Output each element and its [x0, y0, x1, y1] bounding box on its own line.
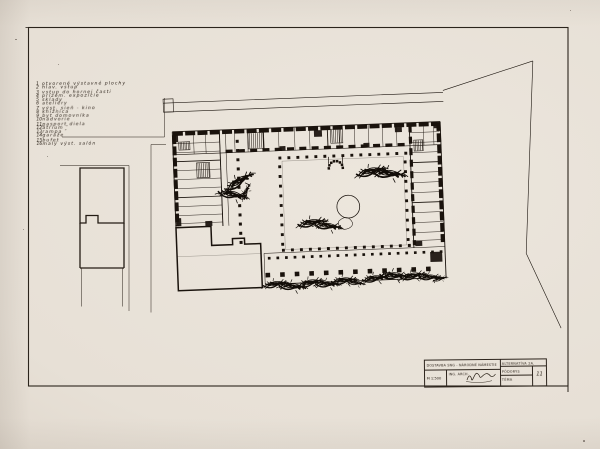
title-block: DOSTAVBA SNG - NÁRODNÉ NÁMESTIE M 1:500 … — [424, 358, 547, 387]
main-building-plan — [162, 60, 561, 343]
room-partitions — [172, 122, 444, 257]
fountain-circle — [336, 195, 360, 219]
building-outline — [172, 122, 446, 288]
wall-segments — [172, 122, 444, 254]
drawing-type-label: PÔDORYS — [500, 367, 533, 376]
theme-label: TÉMA — [501, 375, 534, 385]
author-label: ING. ARCH. — [447, 370, 501, 386]
legend-item-label: malý výst. salón — [42, 143, 96, 147]
dust-speck — [58, 64, 59, 65]
tree-symbol — [417, 271, 444, 283]
dust-speck — [23, 229, 24, 230]
site-boundary-right — [519, 60, 561, 329]
trees — [213, 158, 449, 298]
existing-building-outline — [80, 168, 124, 268]
dust-speck — [47, 156, 48, 157]
south-colonnade — [264, 246, 446, 284]
dust-speck — [15, 39, 17, 41]
southwest-annex-outline — [176, 225, 262, 291]
tree-symbol — [369, 164, 408, 184]
drawing-scale: M 1:500 — [425, 371, 447, 386]
legend-item: 16malý výst. salón — [36, 142, 126, 147]
dust-speck — [583, 440, 585, 442]
photograph-of-plan: 1otvorené výstavné plochy 2hlav. vstup 3… — [0, 0, 600, 449]
tree-symbol — [346, 277, 367, 288]
sheet-number: 11 — [533, 367, 546, 385]
dust-speck — [570, 10, 571, 11]
legend: 1otvorené výstavné plochy 2hlav. vstup 3… — [36, 82, 127, 147]
